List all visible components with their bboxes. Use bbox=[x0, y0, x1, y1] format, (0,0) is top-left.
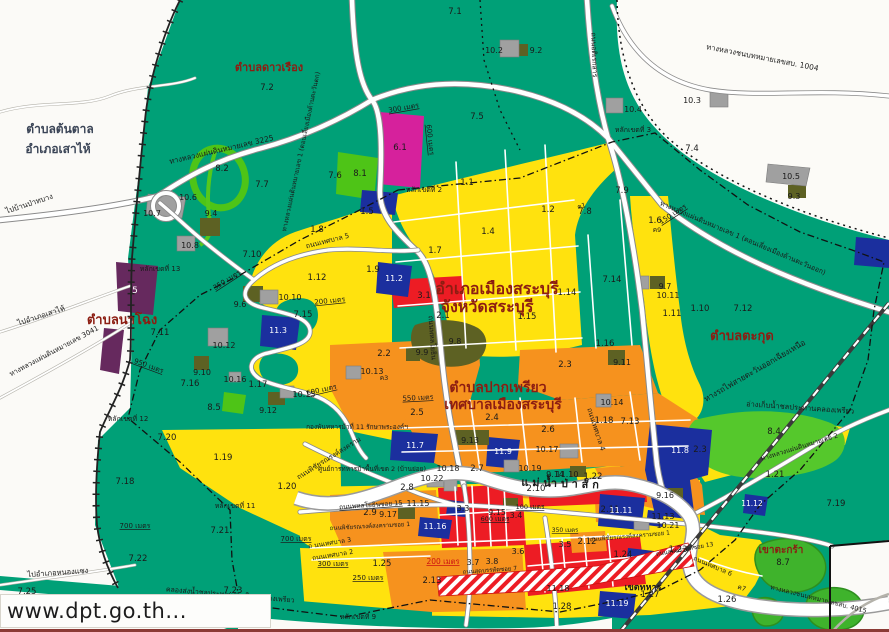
map-label: 1.20 bbox=[278, 482, 297, 492]
map-label: 250 เมตร bbox=[353, 574, 384, 582]
map-label: 2.1 bbox=[436, 311, 450, 321]
map-label: 9.4 bbox=[205, 209, 218, 218]
map-label: 8.5 bbox=[207, 403, 221, 413]
map-label: 9.6 bbox=[234, 300, 247, 309]
zoning-map: ตำบลต้นตาลอำเภอเสาไห้ตำบลดาวเรืองตำบลนาโ… bbox=[0, 0, 889, 632]
map-label: 2.3 bbox=[558, 360, 572, 370]
map-label: 2.5 bbox=[410, 408, 424, 418]
map-label: 10.21 bbox=[657, 521, 680, 530]
map-label: 7.6 bbox=[328, 171, 342, 181]
map-label: 11.18 bbox=[547, 584, 570, 593]
map-label: 11.9 bbox=[494, 447, 512, 456]
map-label: 10.5 bbox=[782, 172, 800, 181]
map-label: อำเภอเมืองสระบุรี bbox=[435, 279, 559, 299]
map-label: 2.7 bbox=[470, 464, 484, 474]
map-label: 1.12 bbox=[308, 273, 327, 283]
map-label: 9.17 bbox=[379, 510, 397, 519]
map-label: ค3 bbox=[380, 374, 388, 382]
map-label: 1.28 bbox=[553, 602, 572, 612]
map-label: 11.8 bbox=[671, 446, 689, 455]
map-label: 2.8 bbox=[400, 483, 414, 493]
map-label: 11.16 bbox=[424, 522, 447, 531]
map-label: 10.10 bbox=[279, 293, 302, 302]
map-label: 10.14 bbox=[601, 398, 624, 407]
map-label: 2.13 bbox=[423, 576, 442, 586]
map-label: 10.4 bbox=[624, 105, 642, 114]
map-label: 7.10 bbox=[243, 250, 262, 260]
map-label: หลักเขตที่ 2 bbox=[406, 185, 442, 194]
map-label: 1.21 bbox=[766, 470, 785, 480]
map-label: เทศบาลเมืองสระบุรี bbox=[444, 397, 562, 413]
map-label: 7.7 bbox=[255, 180, 269, 190]
map-label: 700 เมตร bbox=[120, 522, 151, 530]
map-label: 11.10 bbox=[556, 470, 579, 479]
map-label: 9.9 bbox=[416, 348, 429, 357]
map-label: ศูนย์การทหารม้าพื้นที่เขต 2 (บ้านย่อย) bbox=[318, 464, 426, 473]
map-label: 10.19 bbox=[519, 464, 542, 473]
map-label: 8.2 bbox=[215, 164, 229, 174]
map-label: 7.15 bbox=[294, 310, 313, 320]
map-label: 5 bbox=[132, 286, 138, 296]
map-label: 9.15 bbox=[488, 508, 506, 517]
watermark-url: www.dpt.go.th... bbox=[0, 594, 271, 628]
map-label: 6.1 bbox=[393, 143, 407, 153]
map-label: 300 เมตร bbox=[318, 560, 349, 568]
map-label: 10.8 bbox=[181, 241, 199, 250]
map-label: 1.2 bbox=[541, 205, 555, 215]
map-label: 7.16 bbox=[181, 379, 200, 389]
map-label: 1.4 bbox=[481, 227, 495, 237]
map-label: 2.12 bbox=[578, 537, 597, 547]
map-label: 1.6 bbox=[648, 216, 662, 226]
map-label: 1.22 bbox=[584, 472, 603, 482]
map-label: 7.5 bbox=[470, 112, 484, 122]
map-label: 10.11 bbox=[657, 291, 680, 300]
map-label: 1.18 bbox=[595, 416, 614, 426]
map-label: 2.6 bbox=[541, 425, 555, 435]
map-label: 7.11 bbox=[151, 328, 170, 338]
map-label: 2.2 bbox=[377, 349, 391, 359]
map-label: 7.13 bbox=[621, 417, 640, 427]
map-label: ถนนอดิเรกสาร bbox=[589, 32, 599, 77]
map-label: 8.7 bbox=[776, 558, 790, 568]
map-label: 8.1 bbox=[353, 169, 367, 179]
map-label: หลักเขตที่ 12 bbox=[108, 414, 149, 423]
map-label: 3.7 bbox=[467, 558, 480, 567]
map-label: 9.8 bbox=[449, 337, 462, 346]
map-label: 7.12 bbox=[734, 304, 753, 314]
map-label: 1.10 bbox=[691, 304, 710, 314]
map-label: 350 เมตร bbox=[552, 527, 579, 534]
map-label: 7.4 bbox=[685, 144, 699, 154]
map-label: 2.4 bbox=[485, 413, 499, 423]
map-label: 10.6 bbox=[179, 193, 197, 202]
watermark-text: www.dpt.go.th... bbox=[7, 599, 187, 623]
map-label: อำเภอเสาไห้ bbox=[25, 141, 90, 156]
map-label: 10.17 bbox=[536, 445, 559, 454]
map-label: 9.11 bbox=[613, 358, 631, 367]
map-label: 7.20 bbox=[158, 433, 177, 443]
map-label: 9.12 bbox=[259, 406, 277, 415]
map-label: 10.15 bbox=[293, 390, 316, 399]
map-label: 7.22 bbox=[129, 554, 148, 564]
map-label: 10.16 bbox=[224, 375, 247, 384]
map-label: 2.9 bbox=[363, 508, 377, 518]
map-label: 9.2 bbox=[530, 46, 543, 55]
map-label: 1.17 bbox=[249, 380, 268, 390]
map-label: 10.7 bbox=[143, 209, 161, 218]
map-label: หลักเขตที่ 11 bbox=[215, 501, 256, 510]
map-label: ตำบลปากเพรียว bbox=[449, 380, 546, 396]
map-label: 700 เมตร bbox=[281, 535, 312, 543]
map-label: 1.14 bbox=[558, 288, 577, 298]
map-label: 11.13 bbox=[652, 512, 675, 521]
map-label: 7.9 bbox=[615, 186, 629, 196]
map-label: หลักเขตที่ 9 bbox=[340, 612, 376, 621]
map-label: กองพันทหารม้าที่ 11 รักษาพระองค์ฯ bbox=[306, 422, 408, 431]
map-label: 1.25 bbox=[373, 559, 392, 569]
map-label: 10.22 bbox=[421, 474, 444, 483]
map-label: 1.26 bbox=[718, 595, 737, 605]
map-label: 1.24 bbox=[614, 550, 633, 560]
map-label: 11.12 bbox=[741, 499, 763, 508]
zoning-map-page: ตำบลต้นตาลอำเภอเสาไห้ตำบลดาวเรืองตำบลนาโ… bbox=[0, 0, 889, 632]
map-label: 550 เมตร bbox=[402, 393, 434, 403]
map-label: 7.19 bbox=[827, 499, 846, 509]
map-label: 3.1 bbox=[417, 291, 431, 301]
map-label: 1.11 bbox=[663, 309, 682, 319]
map-label: เขาตะกร้า bbox=[759, 544, 804, 556]
map-label: 11.15 bbox=[407, 499, 430, 508]
map-label: 10.2 bbox=[485, 46, 503, 55]
map-label: ค9 bbox=[653, 226, 661, 234]
map-label: 9.3 bbox=[788, 192, 801, 201]
map-label: 200 เมตร bbox=[426, 557, 459, 566]
map-label: 9.13 bbox=[461, 436, 479, 445]
map-label: 9.7 bbox=[659, 282, 672, 291]
map-label: 3.4 bbox=[510, 511, 523, 520]
map-label: 3.3 bbox=[457, 504, 470, 513]
map-label: 11.7 bbox=[406, 441, 424, 450]
map-label: 7.14 bbox=[603, 275, 622, 285]
map-label: 1.19 bbox=[214, 453, 233, 463]
map-label: 10.3 bbox=[683, 96, 701, 105]
map-label: 11.11 bbox=[610, 506, 633, 515]
map-label: 3.5 bbox=[559, 540, 572, 549]
map-label: 11.3 bbox=[269, 326, 287, 335]
map-label: 1.1 bbox=[460, 178, 474, 188]
map-label: 7.21 bbox=[211, 526, 230, 536]
map-label: 7.18 bbox=[116, 477, 135, 487]
map-label: 2.3 bbox=[693, 445, 707, 455]
map-label: 1.7 bbox=[428, 246, 442, 256]
map-label: หลักเขตที่ 13 bbox=[140, 264, 181, 273]
map-label: 3.6 bbox=[512, 547, 525, 556]
map-label: 1.5 bbox=[360, 207, 374, 217]
map-label: 11.19 bbox=[606, 599, 629, 608]
map-label: 11.2 bbox=[385, 274, 403, 283]
map-label: 7.2 bbox=[260, 83, 274, 93]
map-label: ตำบลดาวเรือง bbox=[235, 61, 303, 74]
map-label: 9.10 bbox=[193, 368, 211, 377]
map-label: 1.8 bbox=[310, 225, 324, 235]
map-label: ตำบลตะกุด bbox=[710, 328, 774, 344]
map-label: 1.23 bbox=[669, 545, 688, 555]
map-label: หลักเขตที่ 3 bbox=[615, 125, 651, 134]
map-label: 100 เมตร bbox=[516, 503, 545, 511]
map-label: 1.9 bbox=[366, 265, 380, 275]
map-label: 1.27 bbox=[641, 590, 660, 600]
map-label: 8.4 bbox=[767, 427, 781, 437]
map-label: 10.18 bbox=[437, 464, 460, 473]
map-label: 3.8 bbox=[486, 557, 499, 566]
map-label: 1.15 bbox=[518, 312, 537, 322]
map-label: ตำบลต้นตาล bbox=[26, 122, 93, 136]
map-label: 10.12 bbox=[213, 341, 236, 350]
map-label: ตำบลนาโฉง bbox=[87, 311, 157, 328]
map-label: 2.10 bbox=[527, 484, 546, 494]
map-label: 1.16 bbox=[596, 339, 615, 349]
map-label: 7.1 bbox=[448, 7, 462, 17]
map-label: 9.16 bbox=[656, 491, 674, 500]
